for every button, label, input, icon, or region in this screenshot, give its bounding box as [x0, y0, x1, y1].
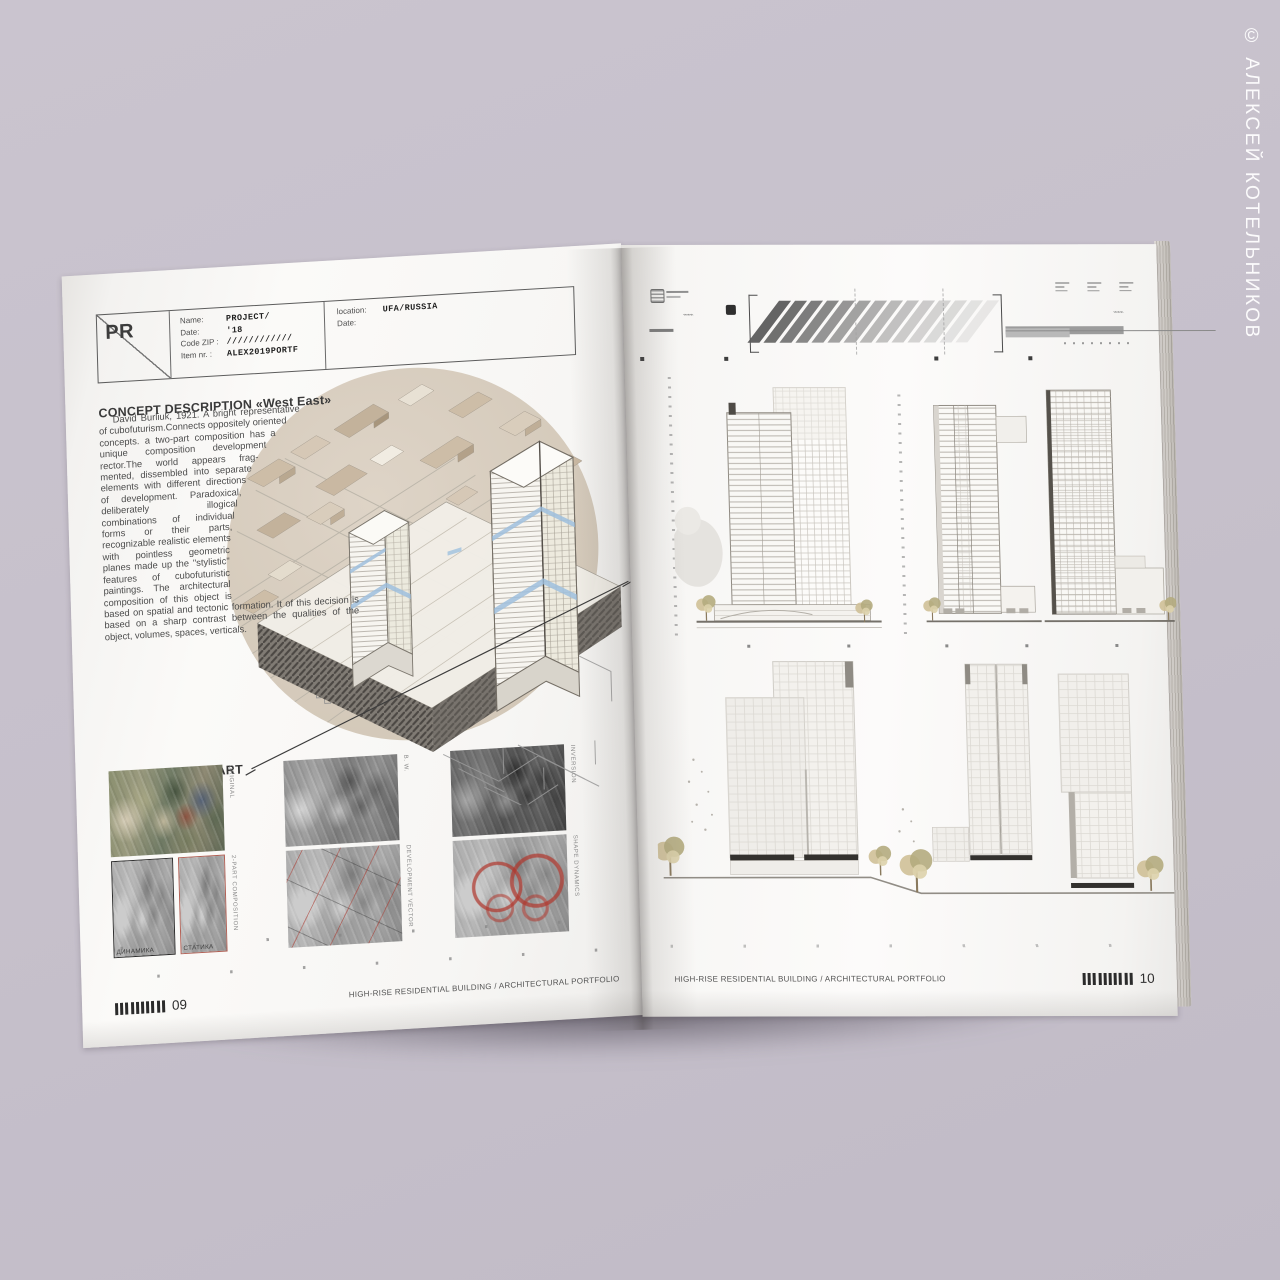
- open-bracket: [748, 295, 759, 353]
- zigzag-mark-icon: ⌁⌁⌁: [1113, 308, 1123, 316]
- header-dash: [649, 329, 673, 332]
- field-value: PROJECT/: [226, 311, 270, 324]
- page-number-barcode: [1083, 972, 1135, 984]
- field-value: ALEX2019PORTF: [227, 344, 299, 358]
- elevation-drawings-bottom-row: [652, 649, 1181, 950]
- red-vector-overlay: [286, 844, 403, 948]
- scale-bar: [1005, 326, 1123, 334]
- technical-header-diagram: ⌁⌁⌁ ⌁⌁⌁: [621, 244, 1156, 245]
- photo-background: © АЛЕКСЕЙ КОТЕЛЬНИКОВ PR Name:PROJECT/ D…: [0, 0, 1280, 1280]
- thumb-image: [112, 859, 175, 958]
- publisher-mark-icon: [650, 289, 696, 302]
- page-left: PR Name:PROJECT/ Date:'18 Code ZIP :////…: [62, 243, 643, 1048]
- dotted-scale: [1064, 342, 1134, 344]
- thumb-development-vector: DEVELOPMENT VECTOR: [286, 844, 403, 948]
- thumb-statics-box: СТАТИКА: [178, 855, 228, 955]
- thumb-image: [179, 856, 227, 954]
- left-page-footer: 09 HIGH-RISE RESIDENTIAL BUILDING / ARCH…: [115, 971, 620, 1016]
- field-label: Item nr. :: [181, 348, 227, 361]
- elevation-drawings-top-row: [670, 372, 1178, 663]
- page-number-right: 10: [1083, 971, 1155, 986]
- footer-title: HIGH-RISE RESIDENTIAL BUILDING / ARCHITE…: [349, 974, 620, 999]
- page-number: 09: [172, 997, 187, 1013]
- right-page-footer: HIGH-RISE RESIDENTIAL BUILDING / ARCHITE…: [674, 971, 1155, 987]
- field-value: '18: [226, 324, 243, 335]
- field-label: Code ZIP :: [180, 337, 226, 350]
- field-label: Date:: [337, 316, 383, 328]
- zigzag-mark-icon: ⌁⌁⌁: [683, 311, 693, 319]
- field-label: Name:: [180, 314, 226, 327]
- thumb-caption: DEVELOPMENT VECTOR: [405, 844, 413, 927]
- copyright-text: © АЛЕКСЕЙ КОТЕЛЬНИКОВ: [1240, 26, 1262, 340]
- black-square-marker: [726, 305, 736, 315]
- portfolio-spread: PR Name:PROJECT/ Date:'18 Code ZIP :////…: [61, 237, 1195, 1040]
- page-number-barcode: [115, 1000, 167, 1015]
- page-right: ⌁⌁⌁ ⌁⌁⌁: [621, 244, 1178, 1017]
- thumb-shape-dynamics: SHAPE DYNAMICS: [453, 834, 570, 938]
- page-number-left: 09: [115, 997, 187, 1016]
- close-bracket: [993, 294, 1004, 352]
- strip-tick-squares: [640, 356, 1040, 361]
- concept-paragraph: David Burliuk, 1921. A bright representa…: [99, 399, 360, 642]
- red-shapes-overlay: [453, 834, 570, 938]
- thumb-two-part-composition: ДИНАМИКА СТАТИКА 2-PART COMPOSITION: [111, 855, 228, 959]
- field-label: location:: [337, 304, 383, 317]
- thumb-caption: SHAPE DYNAMICS: [571, 835, 579, 897]
- hatch-gradient-bars: [763, 300, 984, 342]
- legend-icons: [1055, 282, 1133, 291]
- page-number: 10: [1139, 971, 1154, 986]
- project-code: PR: [105, 320, 134, 345]
- field-label: Date:: [180, 325, 226, 338]
- project-code-cell: PR: [97, 311, 172, 382]
- thumb-caption: 2-PART COMPOSITION: [230, 855, 238, 931]
- footer-title: HIGH-RISE RESIDENTIAL BUILDING / ARCHITE…: [674, 974, 945, 983]
